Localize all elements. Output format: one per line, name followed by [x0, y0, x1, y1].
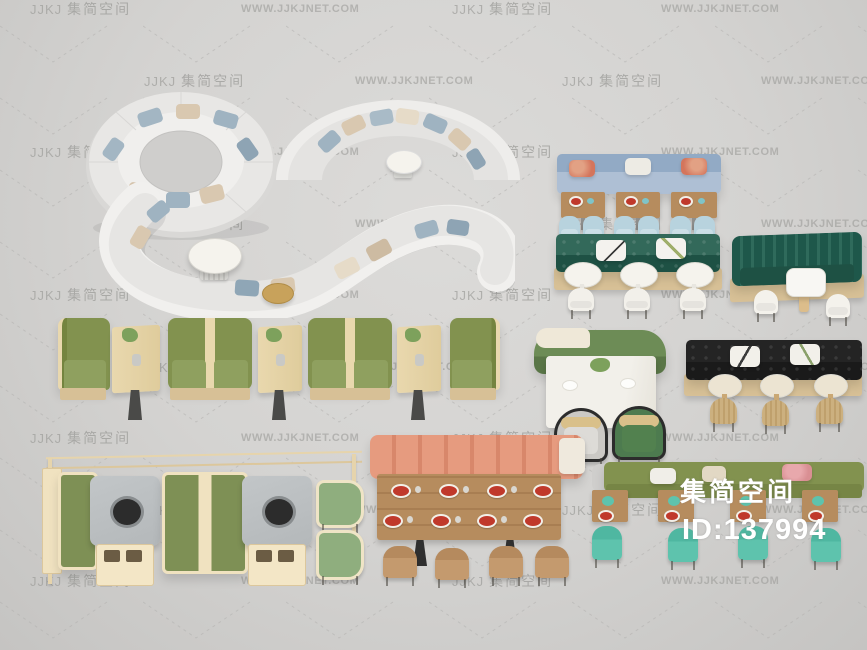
chair	[316, 530, 364, 580]
table-pedestal	[411, 390, 425, 420]
cup	[501, 516, 507, 523]
rattan-chair	[762, 400, 789, 426]
shelf-opening	[256, 550, 272, 562]
wood-chair	[489, 546, 523, 578]
wood-chair	[383, 546, 417, 578]
pillow	[596, 240, 626, 261]
jjkj-logo-icon: JJKJ	[30, 288, 62, 303]
chair	[680, 288, 706, 311]
watermark-site: WWW.JJKJNET.COM	[661, 432, 779, 444]
food-plate	[598, 510, 614, 522]
food-plate	[523, 514, 543, 528]
wood-chair	[535, 546, 569, 578]
shelf-opening	[126, 550, 142, 562]
jjkj-logo-icon: JJKJ	[452, 2, 484, 17]
hotpot-hole	[262, 496, 296, 528]
sofa-blanket	[536, 328, 590, 348]
gold-side-table	[262, 283, 294, 304]
food-plate	[487, 484, 507, 498]
hotpot-bench-double	[162, 472, 248, 574]
hotpot-booth-set	[30, 450, 370, 590]
jjkj-logo-icon: JJKJ	[562, 74, 594, 89]
rattan-chair	[710, 398, 737, 424]
booth-base	[450, 388, 496, 400]
cup	[455, 516, 461, 523]
wood-chair	[435, 548, 469, 580]
pillow	[730, 346, 760, 367]
food-plate	[391, 484, 411, 498]
olive-booth-row	[50, 312, 500, 432]
booth-bench	[370, 435, 583, 479]
round-coffee-table	[188, 238, 242, 274]
cup	[511, 486, 517, 493]
jjkj-logo-icon: JJKJ	[30, 431, 62, 446]
blanket	[559, 438, 585, 474]
teacup	[642, 198, 649, 204]
furniture-render-canvas: JJKJ集简空间WWW.JJKJNET.COMJJKJ集简空间WWW.JJKJN…	[0, 0, 867, 650]
chair	[568, 288, 594, 311]
pillow	[569, 160, 595, 177]
watermark-site: WWW.JJKJNET.COM	[241, 3, 359, 15]
teacup	[698, 198, 705, 204]
watermark-site: WWW.JJKJNET.COM	[761, 75, 867, 87]
booth-base	[60, 388, 106, 400]
food-plate	[477, 514, 497, 528]
watermark-site: WWW.JJKJNET.COM	[355, 75, 473, 87]
food-plate	[679, 196, 693, 207]
centerpiece-plant	[590, 358, 610, 372]
pillow	[790, 344, 820, 365]
watermark-brand-text: 集简空间	[67, 1, 131, 17]
watermark-brand-text: 集简空间	[489, 1, 553, 17]
cup	[407, 516, 413, 523]
teacup	[587, 198, 594, 204]
shelf-opening	[104, 550, 120, 562]
watermark-site: WWW.JJKJNET.COM	[661, 3, 779, 15]
table-pedestal	[128, 390, 142, 420]
watermark-brand: JJKJ集简空间	[562, 71, 663, 91]
vase	[132, 354, 141, 366]
pink-booth-dining-set	[365, 430, 595, 582]
plate	[620, 378, 636, 389]
brand-id-overlay: 集简空间 ID:137994	[680, 472, 826, 547]
teal-chair	[592, 526, 622, 560]
plant	[266, 328, 282, 342]
green-highback-booth-set	[728, 224, 866, 320]
teapot	[602, 496, 614, 506]
watermark-brand-text: 集简空间	[599, 73, 663, 89]
pillow	[625, 158, 651, 175]
food-plate	[439, 484, 459, 498]
food-plate	[383, 514, 403, 528]
chair	[826, 294, 850, 318]
chair	[624, 288, 650, 311]
overhead-rail	[46, 451, 362, 470]
rattan-chair	[816, 398, 843, 424]
dining-table	[671, 192, 717, 218]
booth-base	[170, 388, 250, 400]
hotpot-hole	[110, 496, 144, 528]
square-table	[786, 268, 826, 297]
chair	[754, 290, 778, 314]
plant	[405, 328, 421, 342]
booth-base	[310, 388, 390, 400]
pillow	[681, 158, 707, 175]
food-plate	[624, 196, 638, 207]
jjkj-logo-icon: JJKJ	[30, 2, 62, 17]
cup	[415, 486, 421, 493]
green-tufted-booth-set	[552, 226, 724, 316]
plant	[122, 328, 138, 342]
cup	[463, 486, 469, 493]
watermark-brand-text: 集简空间	[67, 430, 131, 446]
chair	[316, 480, 364, 528]
food-plate	[533, 484, 553, 498]
black-booth-set	[684, 334, 864, 428]
vase	[415, 354, 424, 366]
overlay-brand-text: 集简空间	[680, 472, 826, 509]
pillow	[650, 468, 676, 484]
food-plate	[664, 510, 680, 522]
small-round-table	[386, 150, 422, 174]
plate	[562, 380, 578, 391]
vase	[276, 354, 285, 366]
watermark-site: WWW.JJKJNET.COM	[241, 432, 359, 444]
jjkj-logo-icon: JJKJ	[30, 145, 62, 160]
dining-table	[616, 192, 660, 218]
watermark-brand: JJKJ集简空间	[30, 0, 131, 19]
s-curve-sofa	[85, 178, 515, 318]
teapot	[668, 496, 680, 506]
overlay-id-text: ID:137994	[682, 514, 826, 547]
watermark-brand: JJKJ集简空间	[452, 0, 553, 19]
food-plate	[431, 514, 451, 528]
food-plate	[569, 196, 583, 207]
table-pedestal	[272, 390, 286, 420]
dining-table	[561, 192, 605, 218]
shelf-opening	[278, 550, 294, 562]
pillow	[656, 238, 686, 259]
